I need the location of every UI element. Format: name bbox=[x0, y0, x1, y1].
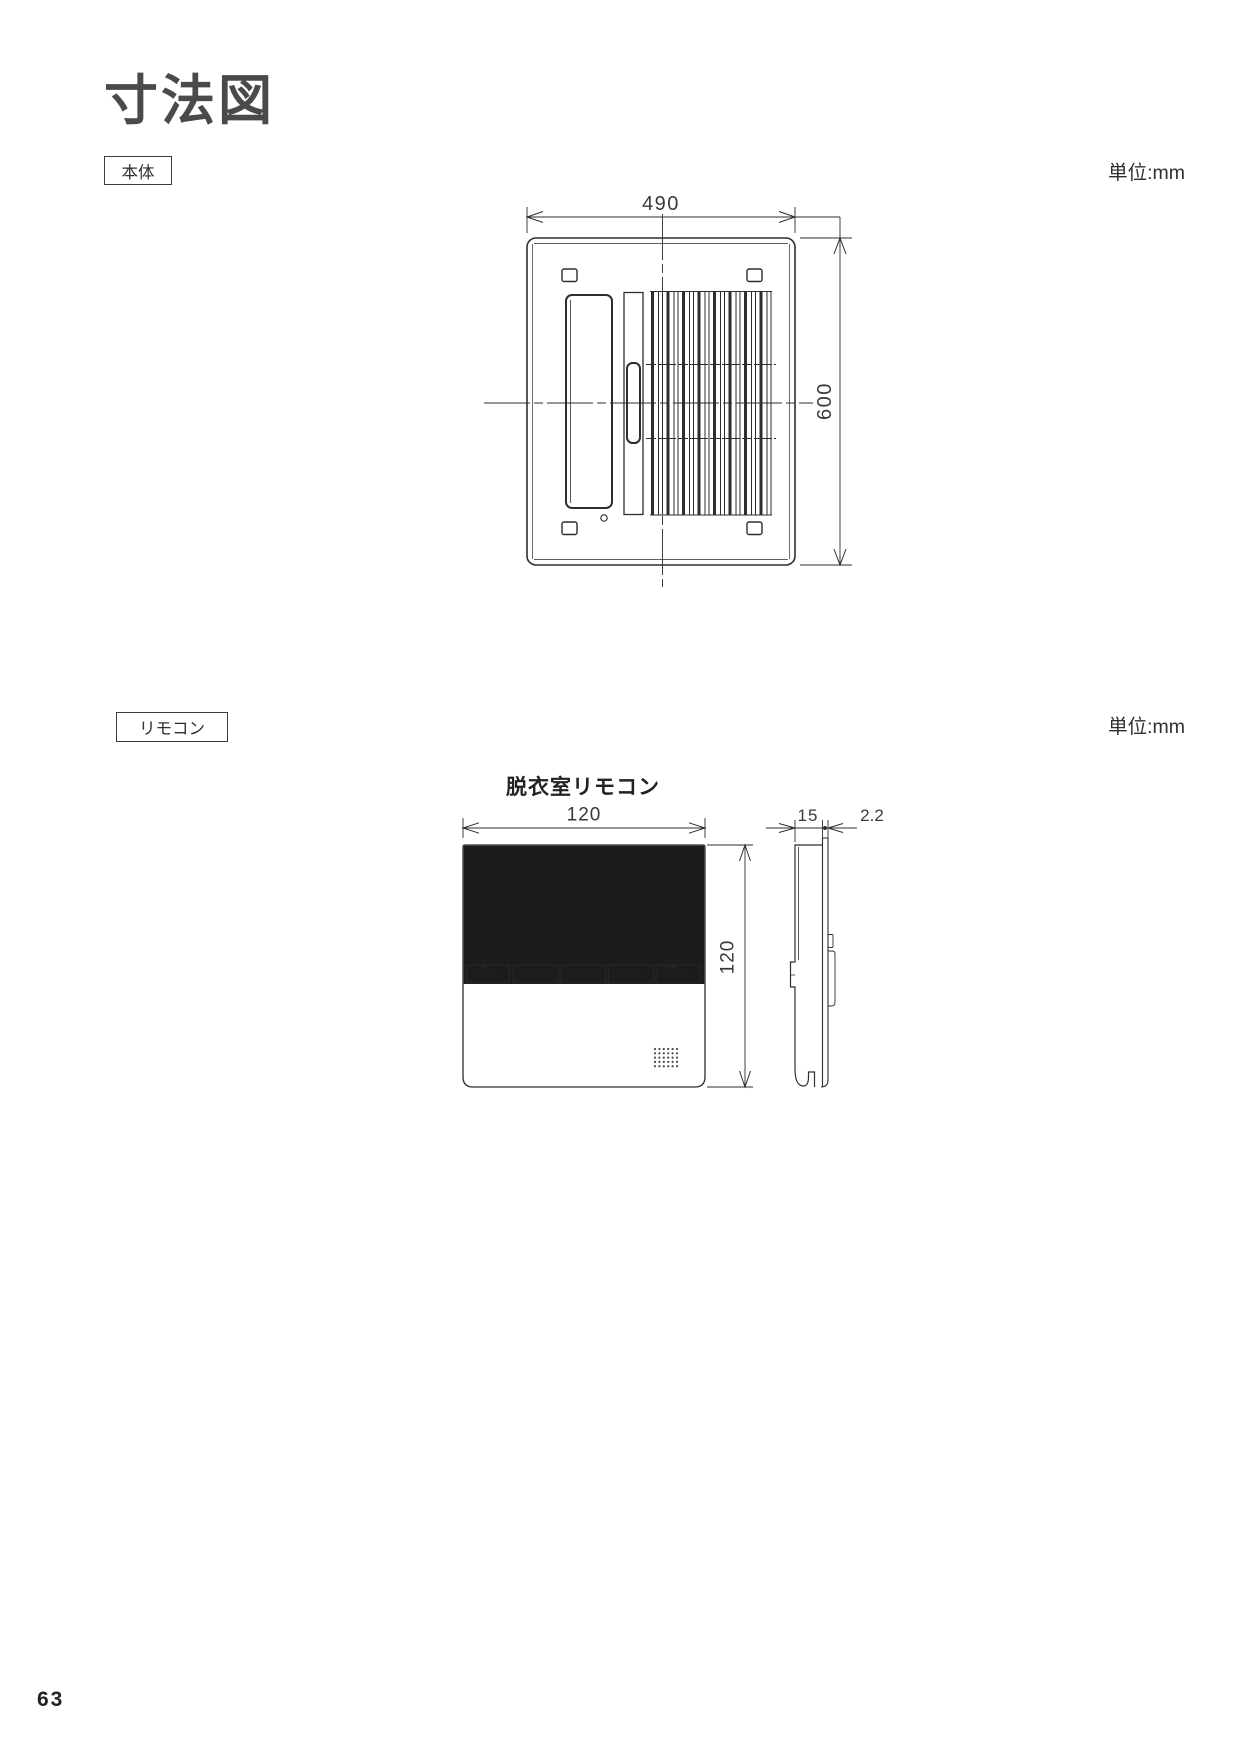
speaker-grid bbox=[654, 1048, 678, 1067]
remote-screen bbox=[464, 846, 705, 963]
dim-height-600: 600 bbox=[800, 217, 852, 565]
mount-clip-upper bbox=[828, 935, 833, 948]
dim-width-490: 490 bbox=[527, 193, 840, 233]
dim-remote-height: 120 bbox=[707, 845, 753, 1087]
side-wall-plate bbox=[821, 838, 835, 1087]
main-unit-drawing: 490 600 bbox=[484, 193, 852, 587]
technical-drawings: 490 600 暖房 衣類乾燥 浴室乾燥 換気 停止 bbox=[0, 0, 1240, 1754]
small-screw-hole bbox=[601, 515, 607, 521]
button-clothes-dry-label: 衣類乾燥 bbox=[522, 971, 551, 980]
panel-outline bbox=[527, 238, 795, 565]
dim-remote-depth: 15 2.2 bbox=[766, 806, 884, 842]
dim-remote-width-value: 120 bbox=[567, 805, 602, 826]
remote-side-drawing: 15 2.2 bbox=[766, 806, 884, 1087]
button-heating-label: 暖房 bbox=[479, 971, 497, 980]
button-stop-label: 停止 bbox=[669, 971, 687, 980]
panel-inner-edges bbox=[533, 244, 790, 560]
dim-depth-value: 15 bbox=[798, 806, 819, 825]
side-body-profile bbox=[791, 845, 823, 1087]
dim-remote-height-value: 120 bbox=[718, 940, 739, 975]
dim-width-value: 490 bbox=[642, 193, 680, 215]
heater-slot bbox=[566, 295, 612, 508]
dim-thickness-value: 2.2 bbox=[860, 806, 884, 825]
dim-height-value: 600 bbox=[814, 382, 836, 420]
dim-remote-width: 120 bbox=[463, 805, 705, 839]
button-bath-dry-label: 浴室乾燥 bbox=[569, 971, 598, 980]
mount-clip-lower bbox=[828, 951, 835, 1006]
remote-front-drawing: 暖房 衣類乾燥 浴室乾燥 換気 停止 120 bbox=[463, 805, 753, 1088]
button-ventilation-label: 換気 bbox=[622, 971, 640, 980]
